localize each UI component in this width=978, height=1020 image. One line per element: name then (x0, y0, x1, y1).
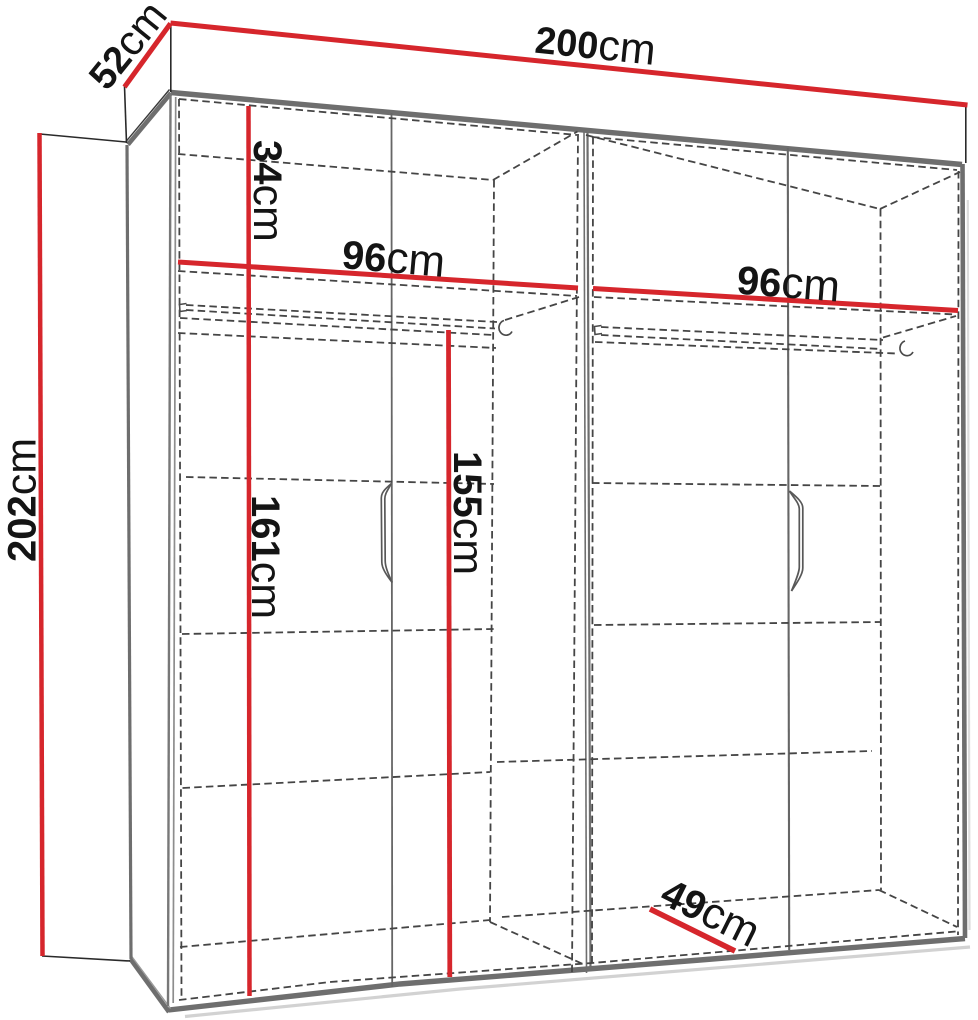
svg-text:202cm: 202cm (0, 438, 46, 562)
svg-text:161cm: 161cm (242, 495, 290, 619)
svg-text:155cm: 155cm (444, 451, 492, 575)
svg-text:34cm: 34cm (244, 140, 292, 242)
svg-text:96cm: 96cm (735, 255, 842, 312)
svg-text:96cm: 96cm (340, 229, 447, 287)
